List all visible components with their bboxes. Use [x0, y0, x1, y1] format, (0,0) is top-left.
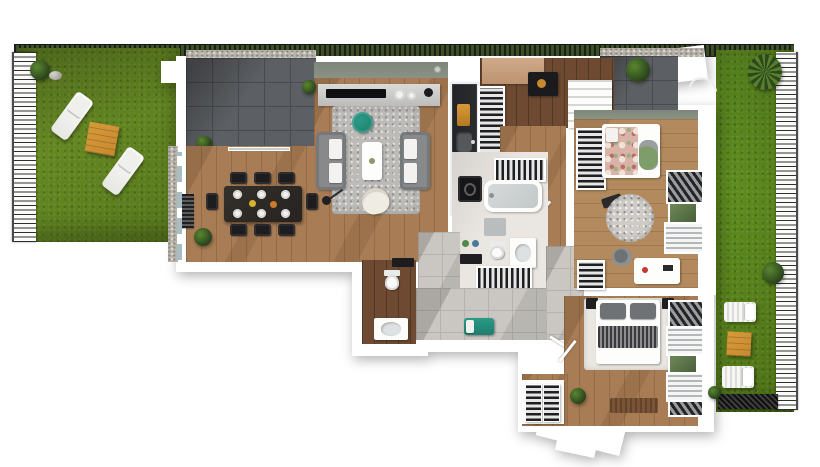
desk-item: [663, 265, 673, 271]
living-top-wall: [314, 62, 448, 78]
indoor-plant: [194, 228, 212, 246]
bathtub: [484, 180, 542, 212]
teal-pouf: [352, 112, 373, 133]
sofa-cushion: [404, 139, 417, 159]
kids-top-wall: [574, 110, 698, 119]
bath-accessory: [462, 240, 469, 247]
bed-pillow: [606, 128, 618, 142]
kids-storage-shelf: [577, 260, 605, 290]
food-bowl: [270, 201, 277, 208]
wc-shelf: [392, 258, 414, 267]
bed-pillow: [630, 303, 656, 319]
bath-accessory: [472, 240, 479, 247]
table-decor: [369, 158, 375, 164]
indoor-plant: [302, 80, 316, 94]
sofa-cushion: [404, 163, 417, 183]
indoor-plant: [570, 388, 586, 404]
orange-canister: [457, 104, 470, 126]
window-shutter: [666, 170, 704, 204]
place-setting: [281, 209, 290, 218]
doormat: [610, 398, 658, 413]
sofa-left: [316, 132, 346, 190]
dining-chair: [254, 172, 271, 184]
decor-mug: [424, 88, 433, 97]
sofa-right: [400, 132, 430, 190]
dining-chair: [230, 224, 247, 236]
beanbag-chair: [639, 140, 658, 170]
dining-chair: [206, 193, 218, 210]
washing-machine: [458, 176, 482, 202]
kitchen-sink: [456, 132, 472, 152]
terrace-door-glass: [228, 147, 290, 151]
place-setting: [257, 190, 266, 199]
round-rug: [606, 194, 654, 242]
palm-plant: [748, 54, 782, 90]
food-bowl: [249, 200, 256, 207]
vanity-sink: [374, 318, 408, 340]
toilet: [490, 246, 504, 259]
bath-mat: [484, 218, 506, 236]
sofa-cushion: [329, 163, 342, 183]
kids-desk: [634, 258, 680, 284]
dining-chair: [278, 224, 295, 236]
desk-chair: [612, 248, 632, 266]
floor-plan-stage: [0, 0, 820, 467]
garden-side-table: [726, 331, 751, 356]
bed-pillow: [600, 303, 626, 319]
dining-chair: [254, 224, 271, 236]
black-appliance: [528, 72, 558, 96]
bathtub-basin: [488, 184, 538, 208]
window-shutter: [666, 326, 704, 356]
tv-flat: [326, 89, 386, 98]
dining-chair: [230, 172, 247, 184]
window-glass: [668, 202, 698, 224]
decor-plate: [407, 91, 416, 100]
appliance-light: [537, 79, 546, 88]
storage-shelf: [476, 266, 532, 290]
coffee-table: [362, 142, 382, 180]
bush-icon: [708, 386, 721, 399]
decor-plate: [394, 89, 405, 100]
window-glass: [668, 354, 698, 374]
dining-chair: [278, 172, 295, 184]
tub-faucet-icon: [489, 193, 494, 198]
place-setting: [233, 190, 242, 199]
toilet: [385, 275, 399, 290]
window-shutter: [666, 372, 704, 402]
ceiling-vent-icon: [434, 66, 441, 73]
place-setting: [281, 190, 290, 199]
teal-bench: [464, 318, 494, 335]
desk-item: [642, 267, 648, 273]
window-shutter: [668, 400, 704, 417]
window-shutter: [668, 300, 704, 328]
striped-throw: [598, 326, 658, 348]
hallway-floor: [418, 232, 460, 292]
place-setting: [233, 209, 242, 218]
wardrobe-shelves: [525, 384, 542, 422]
sofa-cushion: [329, 139, 342, 159]
place-setting: [257, 209, 266, 218]
open-wardrobe: [522, 380, 564, 424]
wardrobe-shelves: [543, 384, 560, 422]
bush-icon: [762, 262, 784, 284]
sun-lounger: [722, 366, 754, 388]
dark-counter: [460, 254, 482, 264]
bench-pillow: [466, 320, 474, 333]
vanity-sink: [510, 238, 536, 268]
dining-chair: [306, 193, 318, 210]
glass-wall-strip: [177, 152, 182, 260]
sun-lounger: [724, 302, 756, 322]
radiator: [180, 194, 194, 228]
towel-shelf: [494, 158, 546, 182]
bush-icon: [626, 58, 650, 82]
dark-grate: [718, 394, 778, 409]
window-shutter: [664, 222, 704, 254]
faucet-icon: [471, 140, 475, 144]
